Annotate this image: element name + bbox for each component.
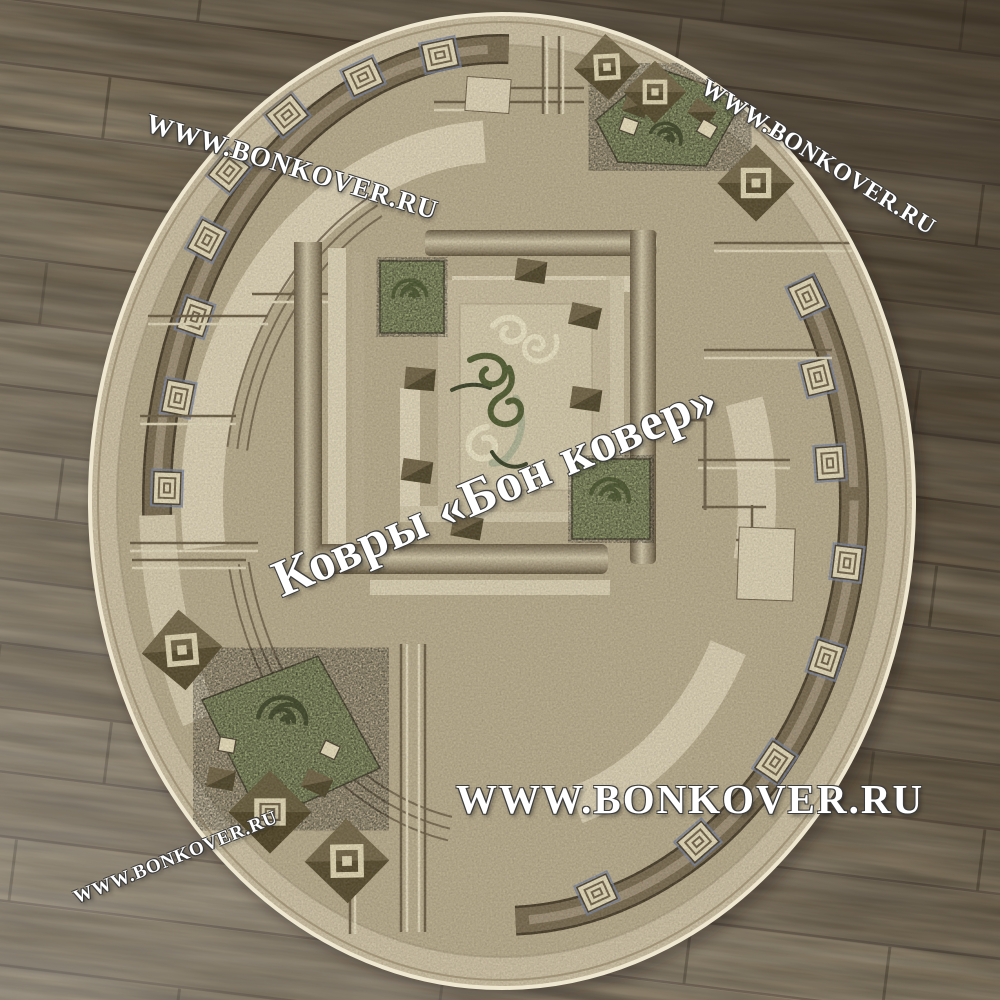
carpet-product-photo: WWW.BONKOVER.RU WWW.BONKOVER.RU Ковры «Б… [0,0,1000,1000]
watermark-bottom-right: WWW.BONKOVER.RU [456,775,924,823]
